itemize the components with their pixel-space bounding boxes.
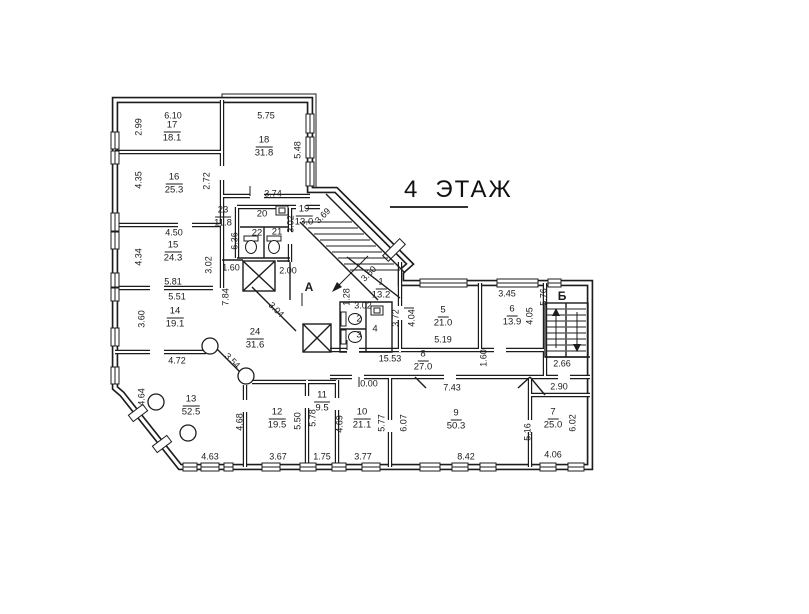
floor-plan: 4ЭТАЖ 113.2234521.0613.9725.0827.0950.31…: [0, 0, 809, 614]
elevator-shaft-2: [303, 324, 331, 352]
floor-number: 4: [404, 176, 419, 204]
elevator-shaft-1: [243, 261, 275, 291]
floor-plan-drawing: [0, 0, 809, 614]
door-openings: [150, 166, 570, 432]
title-underline: [390, 206, 468, 208]
staircase-b: [545, 303, 588, 357]
parapet-line: [222, 94, 316, 190]
floor-word: ЭТАЖ: [435, 176, 512, 203]
windows: [111, 114, 584, 471]
floor-title: 4ЭТАЖ: [396, 176, 526, 204]
